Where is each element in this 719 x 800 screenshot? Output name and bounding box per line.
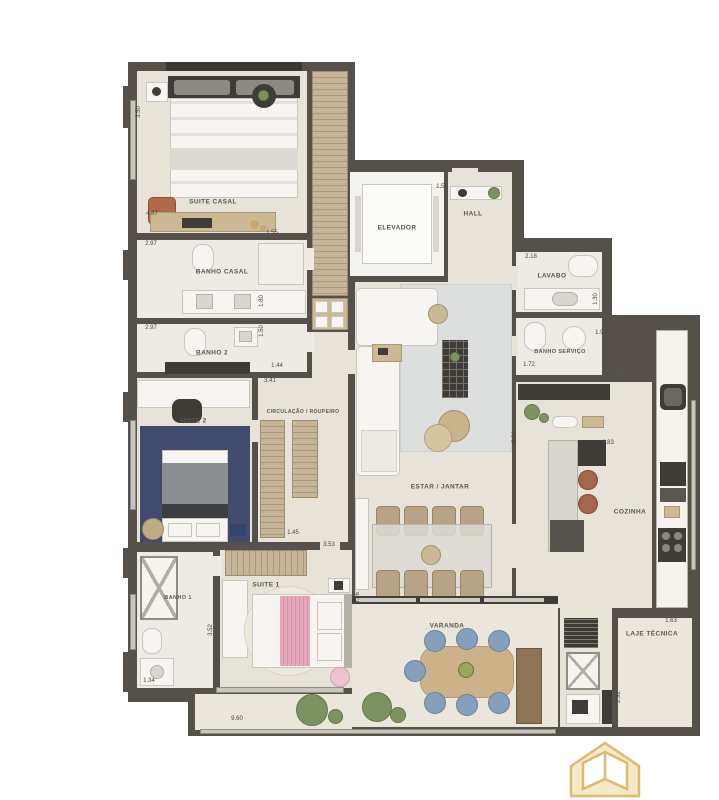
room-label-banho-casal: BANHO CASAL: [196, 269, 248, 276]
plant-icon: [296, 694, 328, 726]
pillow: [174, 80, 230, 95]
bed-foot-suite-2: [162, 450, 228, 464]
plant-icon: [524, 404, 540, 420]
dimension-label: 1.72: [523, 362, 535, 368]
room-label-laje-tecnica: LAJE TÉCNICA: [626, 631, 678, 638]
varanda-chair: [488, 692, 510, 714]
oven-stack: [660, 462, 686, 486]
corridor-cabinet-basin: [315, 301, 328, 313]
plant-icon: [328, 709, 343, 724]
wardrobe-corridor-closet: [312, 71, 348, 296]
vanity-suite-1: [222, 580, 248, 658]
pillow: [196, 523, 220, 537]
door-suite-2: [252, 420, 260, 442]
railing-varanda: [200, 729, 556, 734]
opening-estar-cozinha: [510, 524, 520, 568]
shower-banho-casal: [258, 243, 304, 285]
nightstand-decor: [334, 581, 343, 590]
dimension-label: 1.83: [602, 440, 614, 446]
room-label-lavabo: LAVABO: [538, 273, 567, 280]
bed-suite-2: [162, 463, 228, 505]
dimension-label: 1.50: [436, 184, 448, 190]
corridor-cabinet-basin: [331, 316, 344, 328]
door-banho-casal: [305, 248, 314, 270]
room-label-cozinha: COZINHA: [614, 509, 646, 516]
plant-icon: [390, 707, 406, 723]
bar-stool: [578, 494, 598, 514]
dimension-label: 3.53: [323, 542, 335, 548]
room-label-estar-jantar: ESTAR / JANTAR: [411, 484, 469, 491]
dimension-label: 3.41: [264, 378, 276, 384]
door-banho-1: [213, 556, 222, 576]
duct: [602, 690, 612, 724]
dimension-label: 3.52: [208, 624, 214, 636]
window-banho-1: [130, 594, 136, 650]
plant-icon: [488, 187, 500, 199]
pilaster-left-3: [123, 392, 129, 422]
dimension-label: 1.63: [665, 618, 677, 624]
pilaster-left-2: [123, 250, 129, 280]
tv-rack-shelf: [442, 340, 468, 398]
dimension-label: 1.44: [271, 363, 283, 369]
sliding-door-glass: [420, 598, 480, 602]
dimension-label: 1.45: [287, 530, 299, 536]
mirror: [250, 220, 259, 229]
plant-icon: [362, 692, 392, 722]
floor-corridor-upper: [312, 332, 348, 378]
dimension-label: 9.60: [231, 716, 243, 722]
toilet: [568, 255, 598, 277]
bottles: [552, 416, 578, 428]
corridor-cabinet-basin: [315, 316, 328, 328]
floor-plan-canvas: SUITE CASALBANHO CASALBANHO 2SUITE 2CIRC…: [0, 0, 719, 800]
sofa-cushion: [361, 430, 397, 472]
door-entry: [452, 168, 478, 176]
elevator-door: [433, 196, 439, 252]
table-plant: [458, 662, 474, 678]
room-label-suite-1: SUITE 1: [252, 582, 279, 589]
room-label-banho-servico: BANHO SERVIÇO: [534, 349, 586, 355]
varanda-chair: [404, 660, 426, 682]
dimension-label: 1.30: [593, 293, 599, 305]
pillow: [317, 633, 342, 661]
tray-decor: [378, 348, 388, 355]
decor-bowl: [458, 189, 467, 197]
varanda-chair: [488, 630, 510, 652]
room-label-varanda: VARANDA: [430, 623, 465, 630]
coffee-table-small: [424, 424, 452, 452]
window-cozinha: [691, 400, 696, 570]
varanda-chair: [424, 692, 446, 714]
developer-logo: [566, 740, 644, 798]
magazine: [230, 524, 246, 536]
pouf: [142, 518, 164, 540]
pilaster-left-4: [123, 548, 129, 578]
house-book-logo-icon: [566, 740, 644, 798]
bed-throw-dark: [162, 504, 228, 519]
room-label-hall: HALL: [464, 211, 483, 218]
cutting-board: [664, 506, 680, 518]
pillow: [317, 602, 342, 630]
pedestal-sink: [562, 326, 586, 350]
sink: [196, 294, 213, 309]
microwave: [660, 488, 686, 502]
equipment-unit: [572, 700, 588, 714]
varanda-chair: [456, 628, 478, 650]
sofa-top-section: [356, 288, 438, 346]
decor-item: [260, 225, 266, 231]
dimension-label: 4.87: [146, 211, 158, 217]
dimension-label: 1.80: [259, 295, 265, 307]
dimension-label: 2.97: [145, 325, 157, 331]
sliding-door-glass: [484, 598, 544, 602]
varanda-chair: [424, 630, 446, 652]
plant-icon: [258, 90, 269, 101]
corridor-cabinet-basin: [331, 301, 344, 313]
sink: [552, 292, 578, 306]
toilet: [142, 628, 162, 654]
bed-pink-throw: [280, 596, 310, 666]
room-label-circulacao-roupeiro: CIRCULAÇÃO / ROUPEIRO: [267, 409, 340, 415]
dimension-label: 2.97: [145, 241, 157, 247]
plant-icon: [539, 413, 549, 423]
burner: [674, 544, 682, 552]
dimension-label: 2.92: [616, 691, 622, 703]
room-label-elevador: ELEVADOR: [378, 225, 417, 232]
pillow: [168, 523, 192, 537]
dimension-label: 1.50: [259, 325, 265, 337]
laptop: [182, 218, 212, 228]
pink-side-table: [330, 667, 350, 687]
ottoman: [428, 304, 448, 324]
cutting-board: [582, 416, 604, 428]
room-label-suite-2: SUITE 2: [179, 418, 206, 425]
room-label-suite-casal: SUITE CASAL: [189, 199, 237, 206]
door-banho-2: [305, 332, 314, 352]
ac-condenser: [564, 618, 598, 648]
table-lamp: [152, 87, 161, 96]
wall-shelf: [165, 362, 250, 374]
laundry-counter: [518, 384, 610, 400]
kitchen-low-cabinet: [550, 520, 584, 552]
pilaster-left-5: [123, 652, 129, 692]
dimension-label: 1.34: [143, 678, 155, 684]
window-suite-1-south: [216, 687, 344, 693]
dimension-label: 5.36: [355, 592, 361, 604]
sideboard: [355, 498, 369, 590]
wardrobe-suite-1: [225, 550, 307, 576]
dimension-label: 3.50: [136, 106, 142, 118]
varanda-chair: [456, 694, 478, 716]
shaft-hatch: [566, 652, 600, 690]
dimension-label: 1.93: [595, 330, 607, 336]
toilet: [524, 322, 546, 351]
dimension-label: 2.18: [525, 254, 537, 260]
bed-headboard-suite-1: [344, 594, 352, 668]
burner: [662, 544, 670, 552]
roupeiro-closet-a: [260, 420, 285, 538]
sink: [239, 331, 252, 342]
table-centerpiece: [421, 545, 441, 565]
burner: [674, 532, 682, 540]
elevator-rail: [355, 196, 361, 252]
pilaster-left-1: [123, 86, 129, 128]
bed-throw: [170, 148, 298, 170]
sink: [234, 294, 251, 309]
dimension-label: 1.55: [266, 230, 278, 236]
bar-stool: [578, 470, 598, 490]
roupeiro-closet-b: [292, 420, 318, 498]
burner: [662, 532, 670, 540]
laundry-tub-basin: [664, 388, 682, 406]
plant-icon: [450, 352, 460, 362]
sliding-door-glass: [356, 598, 416, 602]
sink: [150, 665, 164, 679]
window-suite-2: [130, 420, 136, 510]
room-label-banho-1: BANHO 1: [164, 595, 192, 601]
shower-banho-1: [140, 556, 178, 620]
varanda-cabinet: [516, 648, 542, 724]
dimension-label: 3.94: [512, 431, 518, 443]
room-label-banho-2: BANHO 2: [196, 350, 228, 357]
room-label-servico: SERVIÇO: [612, 371, 644, 378]
